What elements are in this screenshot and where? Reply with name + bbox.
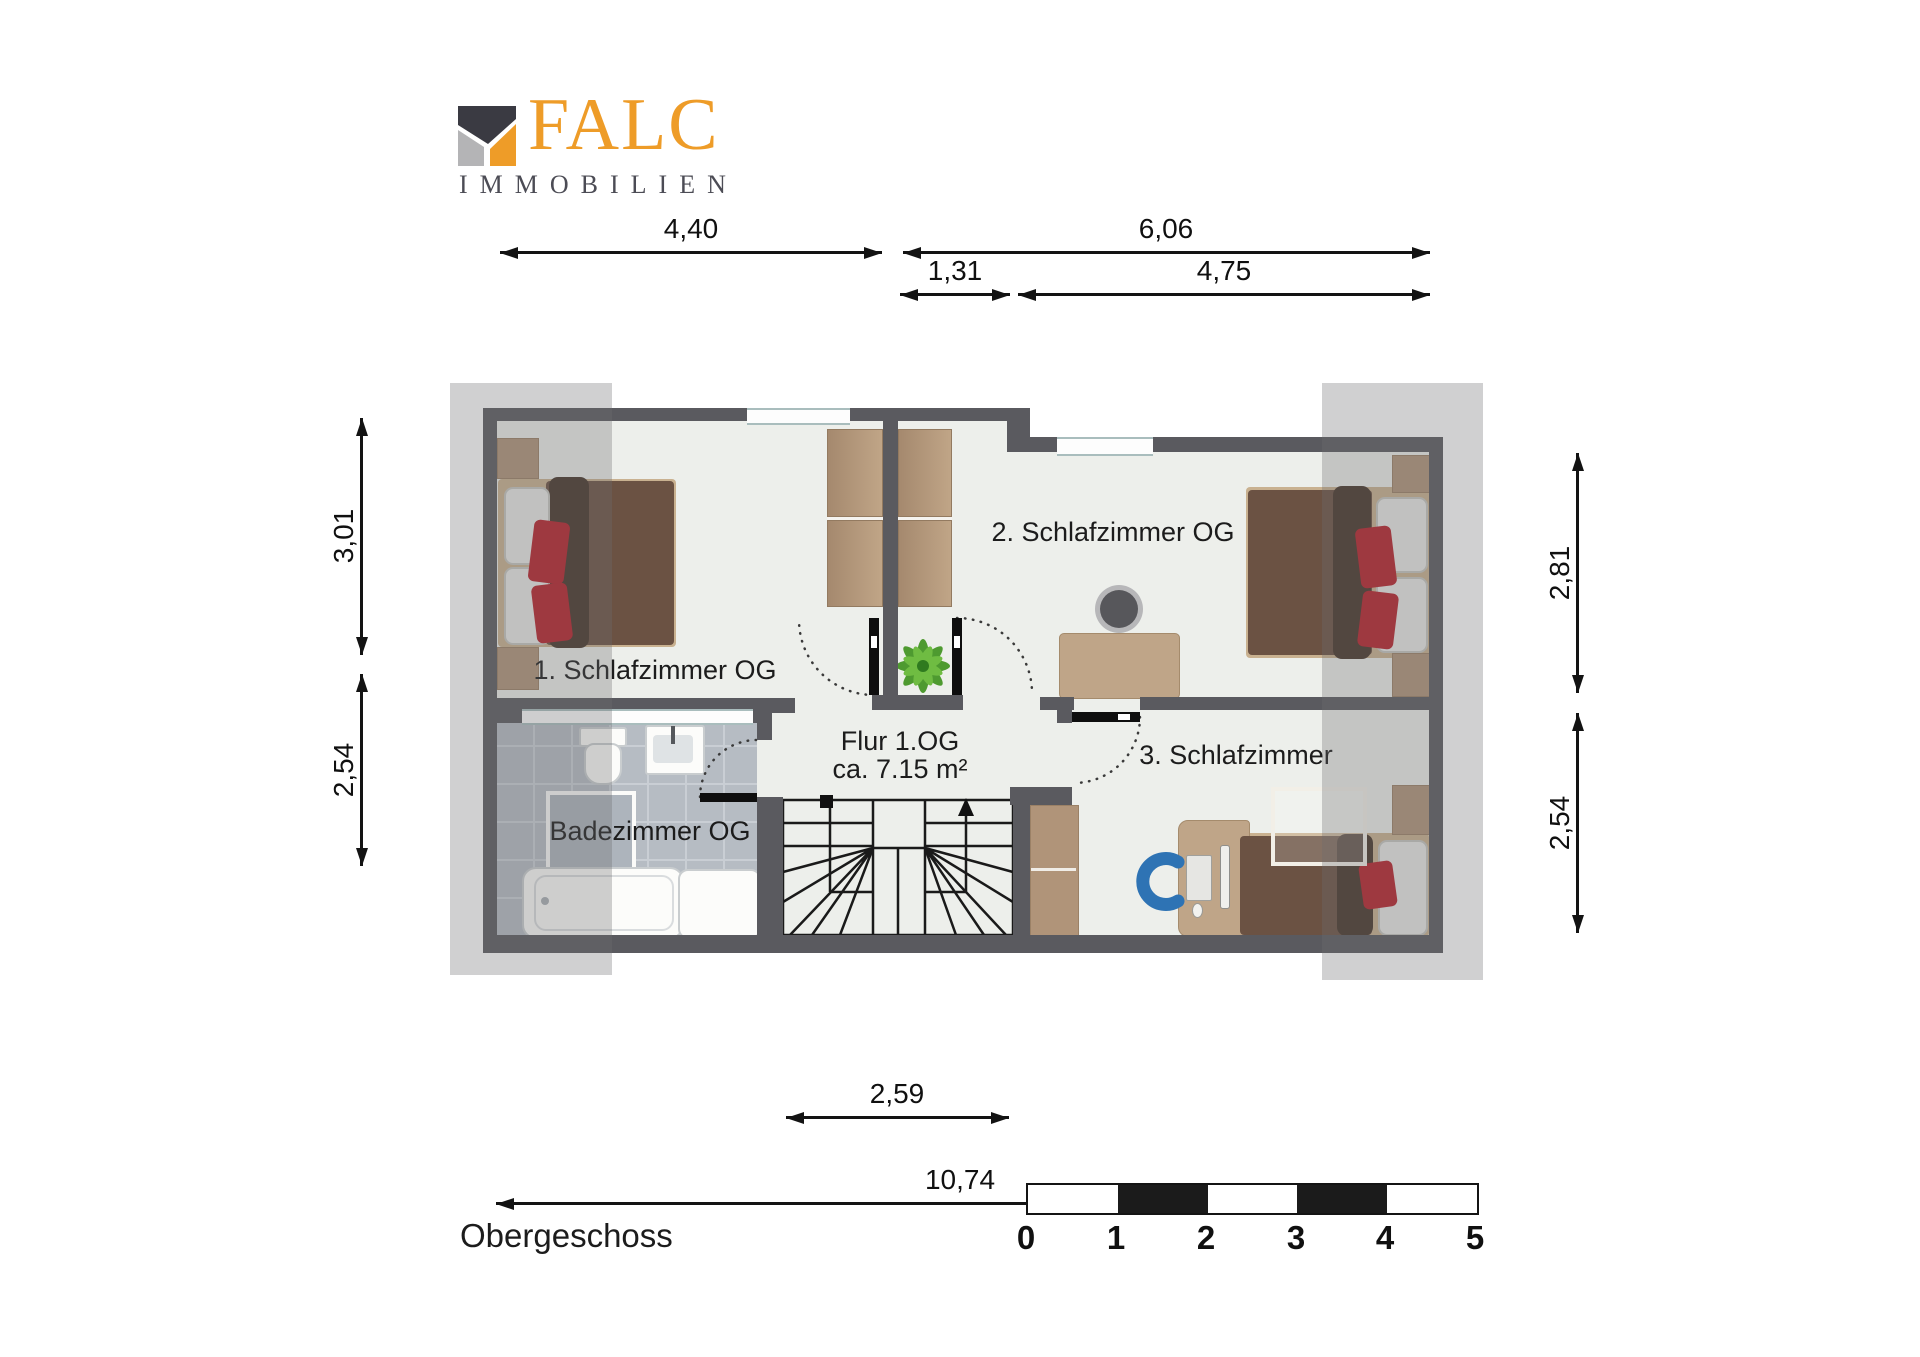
bedroom3-monitor <box>1220 845 1230 909</box>
dim-left-lower-line <box>360 674 363 866</box>
dim-stair-line <box>786 1116 1009 1119</box>
bedroom3-label: 3. Schlafzimmer <box>1139 739 1333 771</box>
floor-title: Obergeschoss <box>460 1216 673 1256</box>
dim-top-right-label: 6,06 <box>1139 215 1194 243</box>
wall-stairwell-right <box>1013 787 1030 953</box>
scale-label-5: 5 <box>1466 1221 1484 1254</box>
logo-wordmark: FALC <box>528 88 720 162</box>
bedroom1-door-handle <box>871 636 877 648</box>
scale-seg-2 <box>1118 1185 1208 1213</box>
floorplan-page: FALC IMMOBILIEN <box>0 0 1920 1357</box>
roof-band-right <box>1322 383 1483 980</box>
bedroom1-wardrobe <box>827 429 883 607</box>
bedroom3-cabinet <box>1030 805 1079 937</box>
bedroom3-keyboard <box>1186 855 1212 901</box>
hall-label-line2: ca. 7.15 m² <box>832 753 967 785</box>
sink-faucet <box>671 726 675 744</box>
dim-top-left-label: 4,40 <box>664 215 719 243</box>
dim-stair-label: 2,59 <box>870 1080 925 1108</box>
wall-bottom <box>483 935 1443 953</box>
bathroom-door-leaf <box>700 793 757 802</box>
wall-stairwell-left <box>757 797 783 953</box>
bedroom2-window <box>1057 437 1153 456</box>
bedroom2-wardrobe <box>898 429 952 607</box>
wall-bedroom-divider <box>883 421 898 695</box>
dim-top-right-line <box>903 251 1430 254</box>
dim-total-label: 10,74 <box>925 1166 995 1194</box>
scale-label-2: 2 <box>1197 1221 1215 1254</box>
scale-seg-3 <box>1208 1185 1298 1213</box>
bedroom2-label: 2. Schlafzimmer OG <box>991 516 1234 548</box>
scale-label-4: 4 <box>1376 1221 1394 1254</box>
logo: FALC IMMOBILIEN <box>458 96 758 206</box>
bedroom1-door-leaf <box>869 618 879 695</box>
wall-bedroom23-stub <box>1057 710 1072 723</box>
dim-left-upper-line <box>360 418 363 655</box>
shower-tray <box>678 869 761 939</box>
bedroom3-mouse <box>1192 903 1203 918</box>
dim-right-upper-line <box>1576 453 1579 693</box>
bedroom2-chair-seat <box>1100 590 1138 628</box>
dim-left-lower-label: 2,54 <box>330 743 358 798</box>
dim-right-lower-line <box>1576 713 1579 933</box>
dim-right-lower-label: 2,54 <box>1546 796 1574 851</box>
dim-inner-right-line <box>1018 293 1430 296</box>
bedroom3-cabinet-seam <box>1031 868 1076 871</box>
wall-bathroom-right-upper <box>757 698 772 740</box>
bedroom2-door-leaf <box>952 618 962 695</box>
dim-top-left-line <box>500 251 882 254</box>
scale-seg-5 <box>1387 1185 1477 1213</box>
logo-subtitle: IMMOBILIEN <box>459 172 738 198</box>
wall-niche-stub <box>872 695 963 710</box>
falc-logo-icon <box>458 106 516 166</box>
scale-label-3: 3 <box>1287 1221 1305 1254</box>
scale-seg-4 <box>1297 1185 1387 1213</box>
dim-right-upper-label: 2,81 <box>1546 546 1574 601</box>
dim-left-upper-label: 3,01 <box>330 509 358 564</box>
bedroom2-desk <box>1059 633 1180 699</box>
dim-inner-left-label: 1,31 <box>928 257 983 285</box>
bedroom1-window <box>747 408 850 425</box>
wall-bedroom23-left <box>1040 697 1074 710</box>
bedroom3-door-handle <box>1118 714 1130 720</box>
scale-bar <box>1026 1183 1479 1215</box>
scale-seg-1 <box>1028 1185 1118 1213</box>
bedroom2-door-handle <box>954 636 960 648</box>
roof-band-left <box>450 383 612 975</box>
scale-label-1: 1 <box>1107 1221 1125 1254</box>
scale-label-0: 0 <box>1017 1221 1035 1254</box>
dim-inner-right-label: 4,75 <box>1197 257 1252 285</box>
